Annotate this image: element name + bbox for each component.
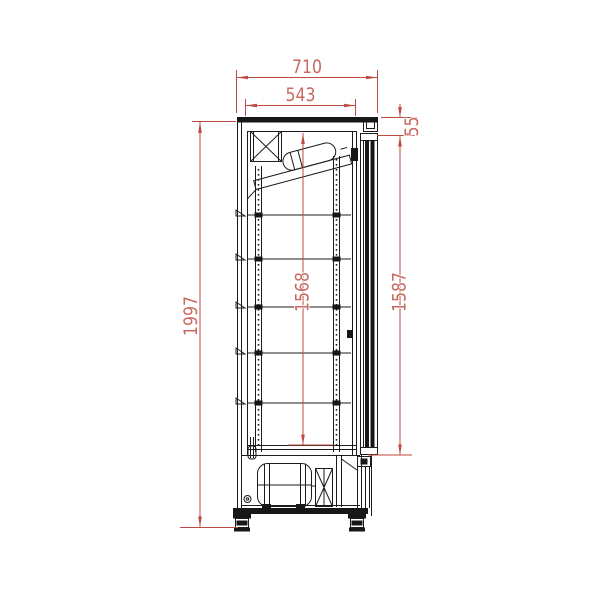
- arrow-left: [246, 104, 258, 108]
- glass-door: [358, 118, 378, 467]
- top-duct-box: [251, 132, 282, 162]
- front-wall-clip: [347, 330, 353, 338]
- arrow-right: [344, 104, 356, 108]
- technical-drawing: 710 543 55 1997 1568 1587: [0, 0, 600, 600]
- filter-drier: [248, 446, 256, 459]
- door-glass-pane-inner: [371, 140, 375, 448]
- suction-pipe: [251, 437, 254, 458]
- door-bottom-rail: [361, 448, 378, 455]
- dim-door-height: 1587: [368, 136, 412, 456]
- arrow-down: [398, 107, 402, 118]
- condenser-fan: [312, 469, 333, 507]
- compressor: [258, 464, 312, 509]
- compartment-divider: [337, 456, 358, 507]
- arrow-up: [198, 122, 202, 134]
- arrow-down: [198, 517, 202, 528]
- dimension-value-inner-depth: 543: [286, 84, 316, 106]
- dimension-value-top-frame: 55: [401, 117, 423, 137]
- foot-left: [233, 514, 251, 532]
- arrow-down: [398, 445, 402, 456]
- arrow-down: [301, 435, 305, 446]
- service-valve-pin: [246, 498, 248, 500]
- arrow-up: [301, 133, 305, 144]
- door-top-rail: [361, 134, 378, 141]
- service-valve: [244, 496, 251, 503]
- dim-top-frame: 55: [377, 104, 423, 137]
- base-rail: [233, 508, 368, 514]
- top-panel: [237, 117, 378, 123]
- drawing-sheet: 710 543 55 1997 1568 1587: [0, 0, 600, 600]
- dim-overall-height: 1997: [180, 122, 238, 528]
- dimension-value-overall-height: 1997: [180, 296, 202, 336]
- door-glass-pane-outer: [365, 140, 369, 448]
- foot-right: [348, 514, 366, 532]
- interior-floor: [242, 446, 361, 456]
- rear-wall: [238, 117, 242, 512]
- dim-inner-depth: 543: [246, 84, 356, 116]
- dimension-value-door-height: 1587: [389, 272, 411, 312]
- arrow-left: [237, 76, 249, 80]
- dimension-value-overall-depth: 710: [292, 56, 322, 78]
- dimension-value-inner-height: 1568: [292, 272, 314, 312]
- front-wall-bracket: [351, 148, 358, 161]
- dim-inner-height: 1568: [288, 133, 333, 445]
- arrow-right: [366, 76, 378, 80]
